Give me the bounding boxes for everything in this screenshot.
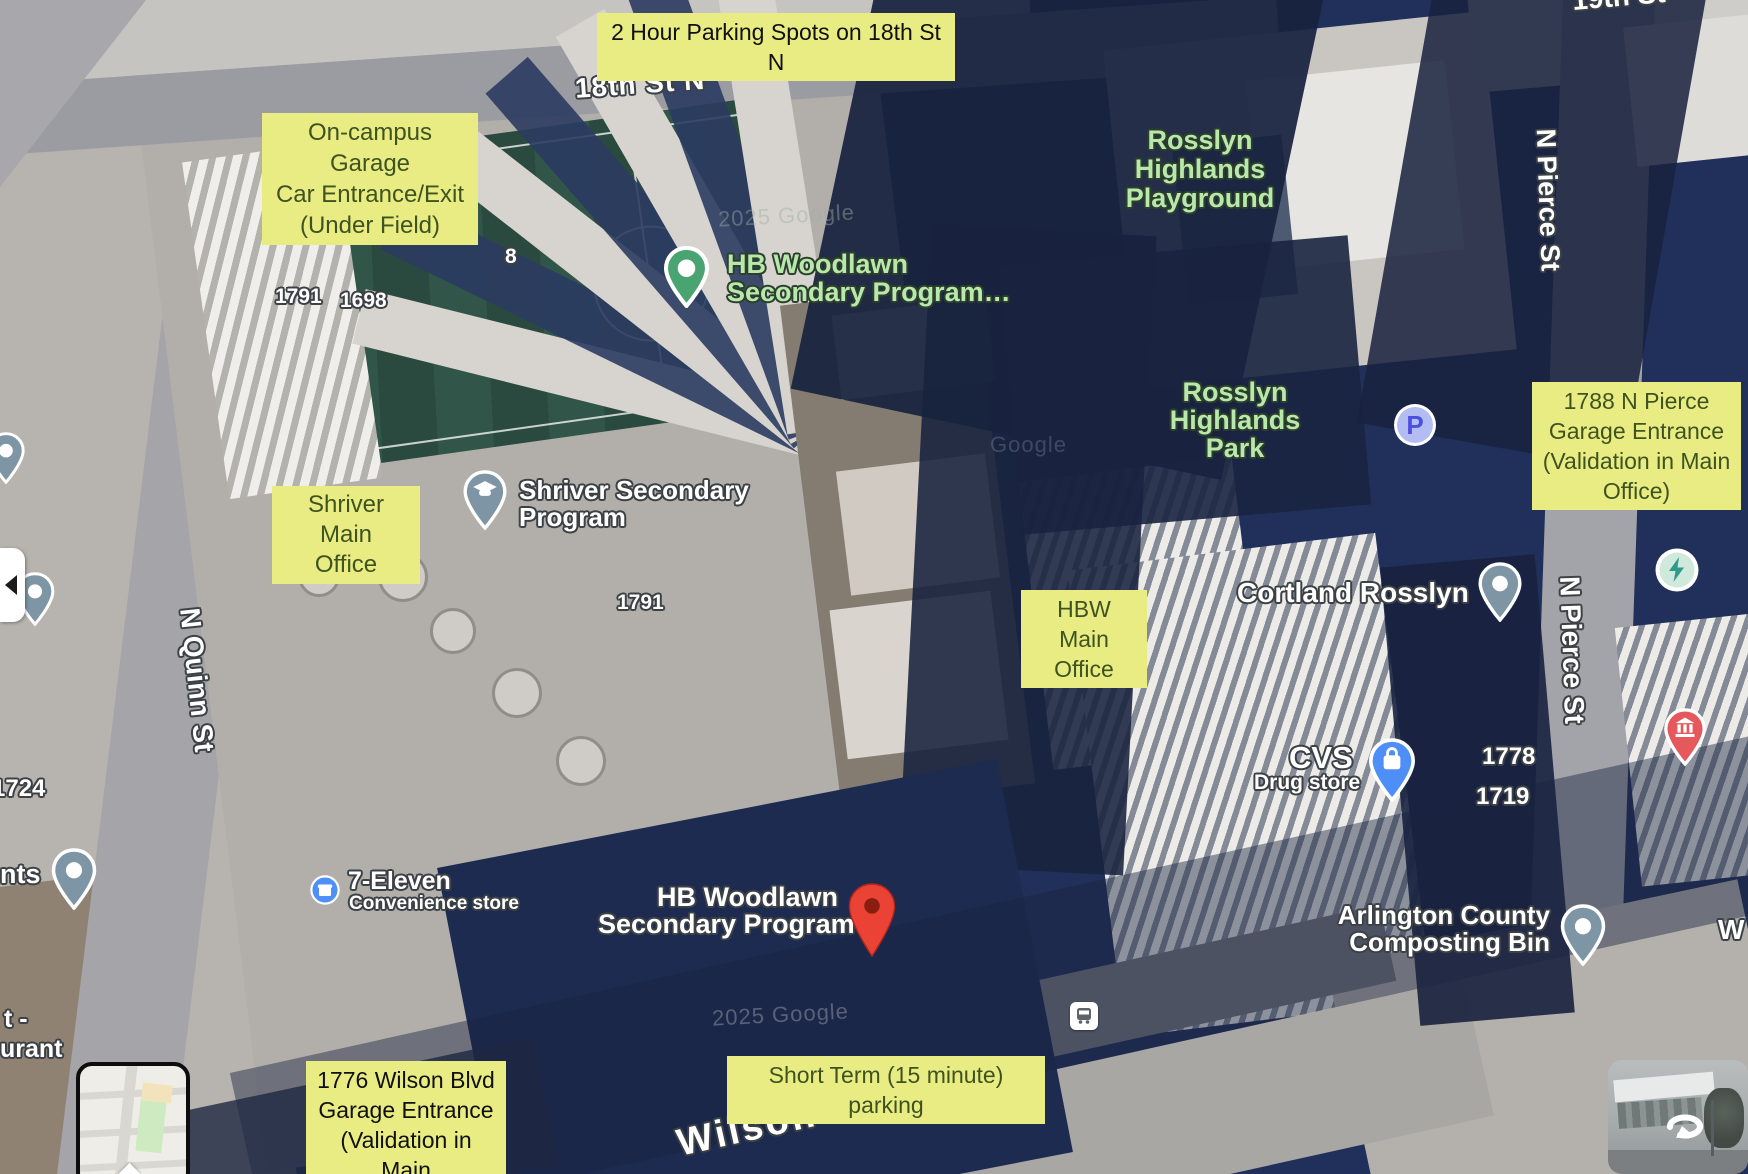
place-seven-eleven-subtitle[interactable]: Convenience store <box>349 894 519 914</box>
street-label-n-pierce-st-lower: N Pierce St <box>1555 576 1590 725</box>
building-number: 1778 <box>1482 744 1535 769</box>
place-rosslyn-highlands-park[interactable]: Rosslyn Highlands Park <box>1140 378 1330 462</box>
place-seven-eleven-title[interactable]: 7-Eleven <box>348 868 451 894</box>
annotation-hbw-main-office: HBW Main Office <box>1021 590 1147 688</box>
civic-building-pin[interactable] <box>1662 708 1708 771</box>
place-arlington-composting-bin[interactable]: Arlington County Composting Bin <box>1330 902 1550 956</box>
minimap-thumbnail[interactable] <box>76 1062 190 1174</box>
annotation-shriver-main-office: Shriver Main Office <box>272 486 420 584</box>
cvs-shopping-pin[interactable] <box>1367 738 1417 807</box>
rotate-arrow-icon <box>1656 1108 1714 1146</box>
bus-stop-icon[interactable] <box>1070 1002 1098 1030</box>
rooftop-structure <box>430 608 476 654</box>
street-view-road <box>1608 1150 1748 1174</box>
left-edge-place-pin[interactable] <box>50 848 98 915</box>
minimap-park-patch <box>135 1099 166 1153</box>
annotation-2hour-parking: 2 Hour Parking Spots on 18th St N <box>597 13 955 81</box>
building-number: 1719 <box>1476 784 1529 809</box>
minimap-road <box>113 1062 138 1174</box>
annotation-short-term-parking: Short Term (15 minute) parking <box>727 1056 1045 1124</box>
building-number-partial: 1724 <box>0 776 45 801</box>
left-edge-place-pin[interactable] <box>0 432 26 489</box>
hb-woodlawn-field-pin[interactable] <box>663 246 710 313</box>
minimap-beige-patch <box>141 1082 173 1103</box>
satellite-map[interactable]: 2025 Google 2025 Google Google 18th St N… <box>0 0 1748 1174</box>
shriver-school-pin[interactable] <box>462 470 508 535</box>
building-number: 1698 <box>340 290 387 312</box>
red-map-marker[interactable] <box>848 882 896 963</box>
place-shriver-secondary-program[interactable]: Shriver Secondary Program <box>519 477 749 531</box>
clipped-place-text: W <box>1718 915 1744 944</box>
place-cvs-subtitle[interactable]: Drug store <box>1254 772 1360 794</box>
building-number: 1791 <box>617 592 664 614</box>
cortland-rosslyn-pin[interactable] <box>1477 562 1523 627</box>
street-label-n-pierce-st-upper: N Pierce St <box>1531 128 1564 271</box>
parking-icon[interactable]: P <box>1393 403 1437 447</box>
seven-eleven-icon[interactable] <box>310 875 340 910</box>
parking-letter: P <box>1393 410 1437 441</box>
rooftop-structure <box>492 668 542 718</box>
place-cortland-rosslyn[interactable]: Cortland Rosslyn <box>1237 578 1469 607</box>
minimap-road <box>76 1125 190 1138</box>
place-rosslyn-highlands-playground[interactable]: Rosslyn Highlands Playground <box>1100 126 1300 213</box>
street-view-thumbnail[interactable] <box>1608 1060 1748 1174</box>
chevron-left-icon <box>5 575 17 595</box>
clipped-place-text: t - <box>4 1006 28 1032</box>
google-watermark: Google <box>990 432 1067 458</box>
composting-bin-pin[interactable] <box>1559 904 1607 971</box>
place-cvs-title[interactable]: CVS <box>1289 742 1353 775</box>
annotation-oncampus-garage: On-campus Garage Car Entrance/Exit (Unde… <box>262 113 478 245</box>
building-number: 1791 <box>275 286 322 308</box>
annotation-1788-n-pierce: 1788 N Pierce Garage Entrance (Validatio… <box>1532 382 1741 510</box>
building-number: 8 <box>505 246 517 268</box>
place-hb-woodlawn-field[interactable]: HB Woodlawn Secondary Program… <box>727 250 1011 306</box>
annotation-1776-wilson: 1776 Wilson Blvd Garage Entrance (Valida… <box>306 1061 506 1174</box>
clipped-place-text: nts <box>0 860 41 888</box>
ev-charging-icon[interactable] <box>1655 548 1699 597</box>
rooftop-structure <box>556 736 606 786</box>
panel-collapse-handle[interactable] <box>0 548 25 622</box>
clipped-place-text: urant <box>0 1036 63 1062</box>
place-hb-woodlawn-marker-label[interactable]: HB Woodlawn Secondary Program <box>598 884 838 938</box>
